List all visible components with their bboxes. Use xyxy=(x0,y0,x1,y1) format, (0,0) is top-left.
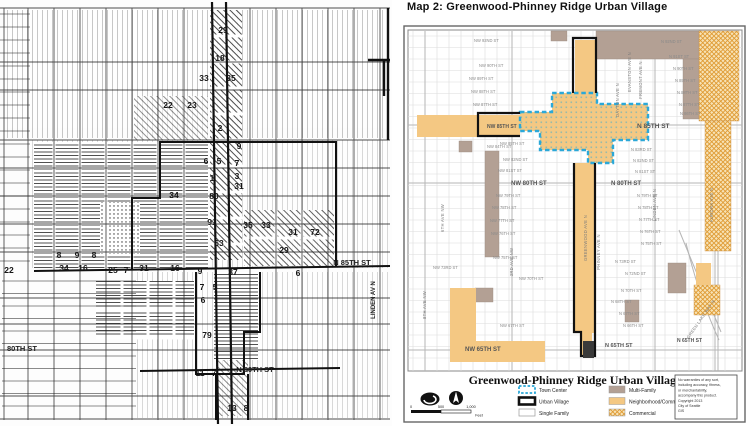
street-label: N 89TH ST xyxy=(675,78,696,83)
street-label: NW 70TH ST xyxy=(519,276,544,281)
street-label: N 88TH ST xyxy=(677,90,698,95)
block-number: 22 xyxy=(163,100,173,110)
block-number: 33 xyxy=(199,73,209,83)
disclaimer-line: City of Seattle xyxy=(678,404,700,408)
block-number: 34 xyxy=(59,263,69,273)
disclaimer-line: GIS xyxy=(678,409,685,413)
legend-label: Multi-Family xyxy=(629,388,656,394)
legend-label: Commercial xyxy=(629,411,656,417)
street-label: NW 73RD ST xyxy=(433,265,458,270)
block-number: 1 xyxy=(210,173,215,183)
block-number: 16 xyxy=(170,263,180,273)
block-number: 7 xyxy=(212,368,217,378)
right-map-panel: Map 2: Greenwood-Phinney Ridge Urban Vil… xyxy=(399,0,750,426)
street-label: N 81ST ST xyxy=(635,169,656,174)
legend-label: Single Family xyxy=(539,411,570,417)
street-label: N 92ND ST xyxy=(661,39,682,44)
legend-swatch-neighborhood-commercial xyxy=(609,398,625,405)
block-number: 29 xyxy=(279,245,289,255)
street-label: N 67TH ST xyxy=(619,311,640,316)
left-map-svg: 2918333522232965713348031913533317229638… xyxy=(0,0,392,426)
street-label-major: NW 80TH ST xyxy=(511,181,547,187)
block-number: 9 xyxy=(75,250,80,260)
corridor-terminus-block xyxy=(583,341,594,358)
block-number: 33 xyxy=(261,220,271,230)
block-number: 6 xyxy=(201,295,206,305)
legend-swatch-urban-village xyxy=(519,398,535,405)
north-arrow-icon xyxy=(449,391,463,405)
disclaimer-box: No warranties of any sort,including accu… xyxy=(675,375,737,419)
left-scanned-map: 2918333522232965713348031913533317229638… xyxy=(0,0,392,426)
scale-tick: 1,000 xyxy=(466,405,476,409)
avenue-label: FREMONT AVE N xyxy=(638,61,643,99)
block-number: 23 xyxy=(187,100,197,110)
block-number: 6 xyxy=(296,268,301,278)
block-number: 3 xyxy=(235,171,240,181)
block-number: 31 xyxy=(234,181,244,191)
legend-label: Town Center xyxy=(539,388,567,394)
street-label: N 66TH ST xyxy=(623,323,644,328)
street-label: N 68TH ST xyxy=(611,299,632,304)
street-label: N 82ND ST xyxy=(633,158,654,163)
avenue-label: GREENWOOD AVE N xyxy=(583,215,588,261)
block-number: 9 xyxy=(237,141,242,151)
street-label: NW 92ND ST xyxy=(474,38,499,43)
street-label-major: NW 85TH ST xyxy=(487,124,517,130)
street-label: NW 76TH ST xyxy=(491,231,516,236)
block-number: 7 xyxy=(124,265,129,275)
street-label: N 80TH ST xyxy=(236,365,274,374)
block-number: 11 xyxy=(196,368,205,378)
avenue-label: 6TH AVE NW xyxy=(440,204,445,232)
legend-swatch-single-family xyxy=(519,409,535,416)
avenue-label: 8TH AVE NW xyxy=(422,291,427,319)
street-label: N 70TH ST xyxy=(621,288,642,293)
scale-tick: 0 xyxy=(410,405,412,409)
street-label: NW 77TH ST xyxy=(490,218,515,223)
avenue-label: AURORA AVE N xyxy=(709,188,714,222)
street-label-major: NW 65TH ST xyxy=(465,347,501,353)
avenue-label: 3RD AVE NW xyxy=(509,248,514,277)
street-label: NW 79TH ST xyxy=(496,193,521,198)
street-label: N 75TH ST xyxy=(641,241,662,246)
block-number: 22 xyxy=(4,265,14,275)
block-number: 5 xyxy=(217,156,222,166)
block-number: 9 xyxy=(198,266,203,276)
block-number: 35 xyxy=(243,220,253,230)
avenue-label: EVANSTON AVE N xyxy=(627,52,632,92)
street-label: NW 84TH ST xyxy=(487,144,512,149)
scale-tick: 500 xyxy=(438,405,444,409)
street-label: NW 75TH ST xyxy=(493,255,518,260)
block-number: 2 xyxy=(218,123,223,133)
street-label: NW 90TH ST xyxy=(479,63,504,68)
street-label: N 91ST ST xyxy=(669,54,690,59)
block-number: 29 xyxy=(218,25,228,35)
block-number: 63 xyxy=(214,238,224,248)
avenue-label: PHINNEY AVE N xyxy=(596,234,601,270)
disclaimer-line: No warranties of any sort, xyxy=(678,378,719,382)
legend-title: Greenwood-Phinney Ridge Urban Village xyxy=(469,373,682,387)
block-number: 31 xyxy=(139,263,149,273)
street-label: N 85TH ST xyxy=(333,258,371,267)
disclaimer-line: Copyright 2013 xyxy=(678,399,702,403)
street-label: NW 89TH ST xyxy=(469,76,494,81)
street-label: NW 87TH ST xyxy=(473,102,498,107)
street-label: N 90TH ST xyxy=(673,66,694,71)
street-label: N 73RD ST xyxy=(615,259,636,264)
disclaimer-line: including accuracy, fitness, xyxy=(678,383,721,387)
street-label: 80TH ST xyxy=(7,344,37,353)
legend-swatch-commercial xyxy=(609,409,625,416)
street-label-major: N 80TH ST xyxy=(611,181,641,187)
street-label: N 83RD ST xyxy=(631,147,652,152)
city-logo-icon xyxy=(421,393,440,406)
block-number: 31 xyxy=(288,227,298,237)
block-number: 8 xyxy=(57,250,62,260)
block-number: 8 xyxy=(92,250,97,260)
block-number: 6 xyxy=(204,156,209,166)
disclaimer-line: accompany this product. xyxy=(678,394,717,398)
block-number: 7 xyxy=(200,282,205,292)
block-number: 79 xyxy=(202,330,212,340)
legend-label: Urban Village xyxy=(539,400,569,406)
block-number: 25 xyxy=(108,265,118,275)
street-label: N 72ND ST xyxy=(625,271,646,276)
street-label: NW 88TH ST xyxy=(471,89,496,94)
block-number: 5 xyxy=(213,282,218,292)
block-number: 34 xyxy=(169,190,179,200)
block-number: 72 xyxy=(310,227,320,237)
street-label-major: N 65TH ST xyxy=(605,343,633,349)
street-label: N 86TH ST xyxy=(680,111,701,116)
street-label: NW 78TH ST xyxy=(492,205,517,210)
street-label: NW 82ND ST xyxy=(503,157,528,162)
map-title: Map 2: Greenwood-Phinney Ridge Urban Vil… xyxy=(407,1,667,13)
scale-unit: Feet xyxy=(475,414,484,418)
block-number: 18 xyxy=(215,53,225,63)
block-number: 16 xyxy=(78,263,88,273)
block-number: 8 xyxy=(244,403,249,413)
street-label: N 87TH ST xyxy=(679,102,700,107)
street-label: LINDEN AV N xyxy=(371,281,377,319)
street-label: NW 81ST ST xyxy=(498,168,523,173)
street-label: NW 67TH ST xyxy=(500,323,525,328)
disclaimer-line: or merchantability, xyxy=(678,388,707,392)
legend-swatch-multi-family xyxy=(609,386,625,393)
avenue-label: LINDEN AVE N xyxy=(652,189,657,221)
street-label: N 76TH ST xyxy=(640,229,661,234)
block-number: 13 xyxy=(227,403,237,413)
block-number: 91 xyxy=(207,217,217,227)
avenue-label: DAYTON AVE N xyxy=(615,83,620,117)
right-map-svg: NW 92ND STNW 90TH STNW 89TH STNW 88TH ST… xyxy=(399,0,750,426)
street-label-major: N 85TH ST xyxy=(637,123,670,130)
block-number: 80 xyxy=(209,191,219,201)
legend-swatch-town-center xyxy=(519,386,535,393)
block-number: 7 xyxy=(235,158,240,168)
block-number: 37 xyxy=(228,267,238,277)
block-number: 35 xyxy=(226,73,236,83)
screenshot-stage: 2918333522232965713348031913533317229638… xyxy=(0,0,750,426)
